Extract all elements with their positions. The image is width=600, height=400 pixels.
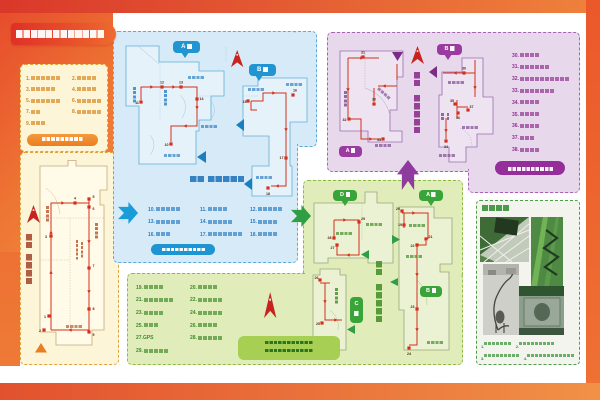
svg-text:15: 15 (243, 100, 247, 104)
svg-text:1: 1 (44, 315, 46, 319)
svg-text:20: 20 (396, 207, 400, 211)
svg-text:14: 14 (200, 97, 204, 101)
svg-text:19: 19 (398, 223, 402, 227)
svg-text:33: 33 (377, 138, 381, 142)
svg-text:37: 37 (470, 105, 474, 109)
svg-text:30: 30 (462, 67, 466, 71)
svg-text:7: 7 (93, 264, 95, 268)
svg-text:29: 29 (361, 217, 365, 221)
svg-text:●: ● (236, 52, 239, 57)
svg-text:30: 30 (372, 98, 376, 102)
svg-text:31: 31 (361, 51, 365, 55)
svg-text:27: 27 (331, 246, 335, 250)
svg-text:26: 26 (315, 276, 319, 280)
svg-text:22: 22 (411, 244, 415, 248)
svg-text:2: 2 (39, 329, 41, 333)
svg-text:32: 32 (343, 118, 347, 122)
svg-text:●: ● (32, 208, 35, 213)
svg-text:18: 18 (266, 192, 270, 196)
svg-text:10: 10 (165, 143, 169, 147)
svg-text:25: 25 (316, 322, 320, 326)
svg-text:●: ● (269, 297, 272, 304)
svg-text:6: 6 (93, 207, 95, 211)
svg-text:16: 16 (293, 89, 297, 93)
svg-text:●: ● (416, 49, 419, 54)
svg-text:3: 3 (45, 235, 47, 239)
svg-text:8: 8 (93, 307, 95, 311)
svg-text:35: 35 (450, 99, 454, 103)
svg-text:24: 24 (407, 352, 411, 356)
svg-text:12: 12 (160, 81, 164, 85)
svg-text:23: 23 (411, 305, 415, 309)
svg-text:5: 5 (93, 195, 95, 199)
svg-text:28: 28 (328, 236, 332, 240)
svg-text:9: 9 (93, 333, 95, 337)
svg-text:17: 17 (280, 156, 284, 160)
svg-text:13: 13 (179, 81, 183, 85)
svg-text:36: 36 (456, 116, 460, 120)
svg-text:34: 34 (444, 145, 448, 149)
svg-text:4: 4 (74, 197, 76, 201)
svg-text:21: 21 (429, 235, 433, 239)
